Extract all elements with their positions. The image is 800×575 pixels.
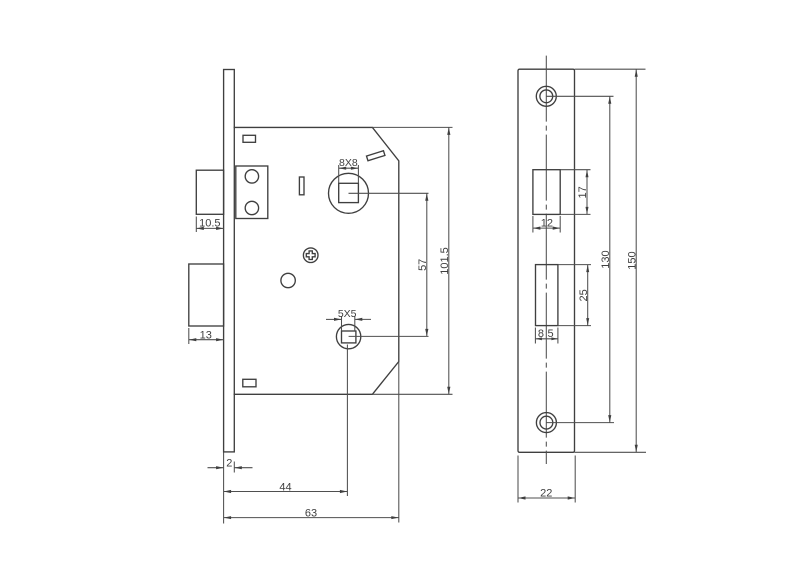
- svg-text:10.5: 10.5: [199, 218, 220, 230]
- svg-text:63: 63: [305, 508, 317, 520]
- svg-text:17: 17: [577, 186, 589, 198]
- svg-text:12: 12: [541, 217, 553, 229]
- svg-text:25: 25: [578, 289, 590, 301]
- svg-text:101.5: 101.5: [439, 247, 451, 275]
- svg-text:8X8: 8X8: [339, 157, 358, 169]
- svg-text:130: 130: [600, 250, 612, 268]
- svg-text:2: 2: [226, 457, 232, 469]
- svg-text:5: 5: [547, 328, 553, 340]
- svg-text:5X5: 5X5: [338, 308, 357, 320]
- svg-text:13: 13: [200, 329, 212, 341]
- svg-text:44: 44: [279, 482, 291, 494]
- svg-text:57: 57: [417, 259, 429, 271]
- svg-text:150: 150: [626, 251, 638, 269]
- svg-text:22: 22: [540, 487, 552, 499]
- svg-text:8: 8: [538, 328, 544, 340]
